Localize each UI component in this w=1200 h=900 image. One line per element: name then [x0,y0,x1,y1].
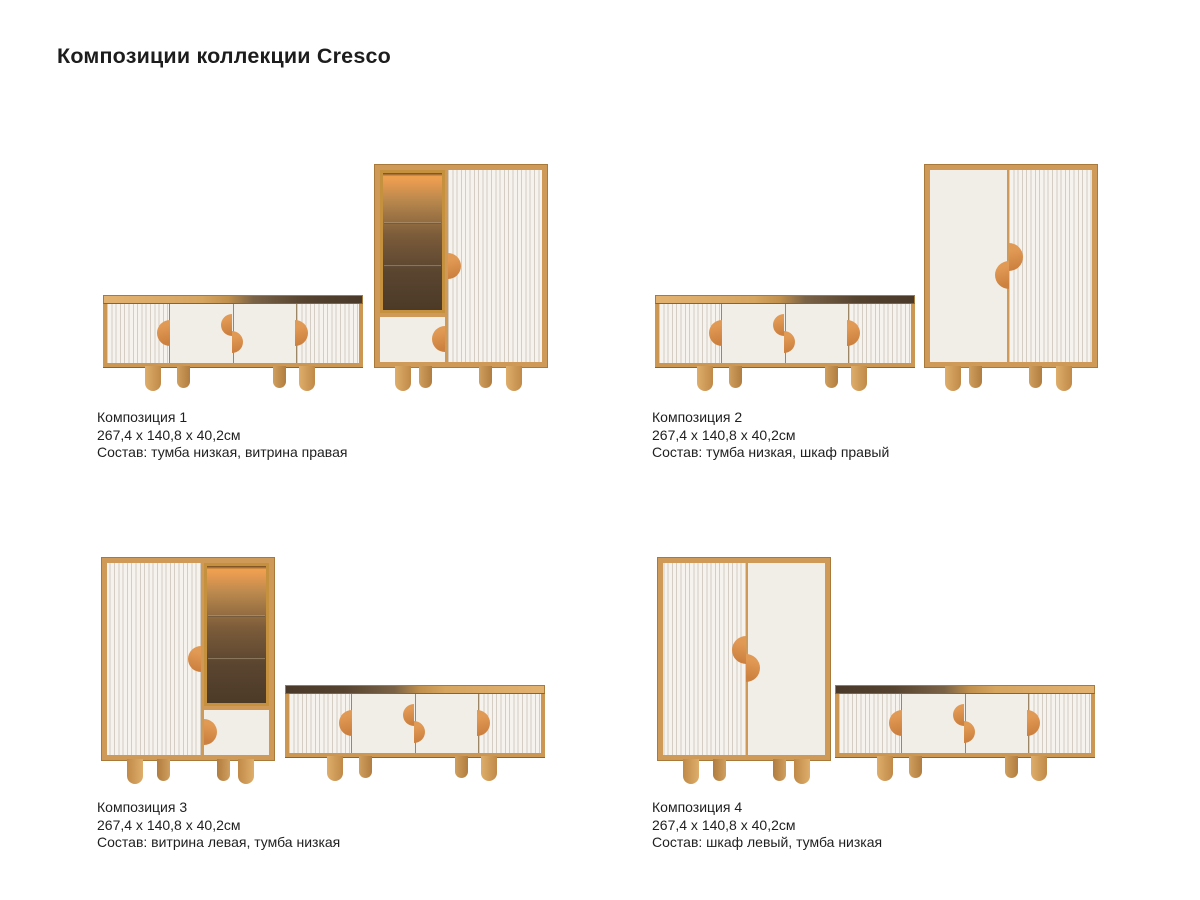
sideboard-front [285,694,545,757]
furniture-leg [877,756,893,781]
display-window [204,563,269,706]
furniture-leg [825,366,838,388]
composition-card-4: Композиция 4 267,4 x 140,8 x 40,2см Сост… [645,540,1115,890]
furniture-leg [1005,756,1018,778]
composition-dimensions: 267,4 x 140,8 x 40,2см [652,817,882,835]
furniture-leg [1029,366,1042,388]
composition-name: Композиция 2 [652,409,889,427]
composition-4-image [645,540,1115,790]
furniture-leg [455,756,468,778]
sideboard-wood-top [835,685,1095,694]
furniture-leg [713,759,726,781]
furniture-leg [1056,366,1072,391]
sideboard-door-right [966,694,1028,753]
composition-3-caption: Композиция 3 267,4 x 140,8 x 40,2см Сост… [97,799,340,852]
composition-dimensions: 267,4 x 140,8 x 40,2см [652,427,889,445]
furniture-leg [299,366,315,391]
furniture-leg [945,366,961,391]
furniture-leg [773,759,786,781]
wardrobe-right [925,165,1097,392]
composition-card-2: Композиция 2 267,4 x 140,8 x 40,2см Сост… [645,150,1115,500]
vitrine-right [375,165,547,392]
furniture-leg [395,366,411,391]
sideboard-door-left [902,694,964,753]
furniture-leg [909,756,922,778]
wardrobe-front [925,165,1097,367]
sideboard-wood-top [655,295,915,304]
sideboard-door-right [416,694,478,753]
furniture-leg [359,756,372,778]
vitrine-front [102,558,274,760]
sideboard-door-left [170,304,232,363]
sideboard-front [655,304,915,367]
wardrobe-door-fluted [1009,170,1092,362]
sideboard-door-left [352,694,414,753]
composition-dimensions: 267,4 x 140,8 x 40,2см [97,427,347,445]
sideboard-low [655,295,915,392]
composition-name: Композиция 4 [652,799,882,817]
composition-name: Композиция 1 [97,409,347,427]
vitrine-front [375,165,547,367]
composition-name: Композиция 3 [97,799,340,817]
furniture-leg [851,366,867,391]
furniture-leg [145,366,161,391]
wardrobe-left [658,558,830,785]
furniture-leg [327,756,343,781]
composition-2-caption: Композиция 2 267,4 x 140,8 x 40,2см Сост… [652,409,889,462]
furniture-leg [419,366,432,388]
furniture-leg [127,759,143,784]
display-window [380,170,445,313]
sideboard-door-right [234,304,296,363]
composition-1-image [90,150,560,400]
furniture-leg [217,759,230,781]
composition-contents: Состав: шкаф левый, тумба низкая [652,834,882,852]
sideboard-door-left [722,304,784,363]
sideboard-low [103,295,363,392]
composition-card-3: Композиция 3 267,4 x 140,8 x 40,2см Сост… [90,540,560,890]
sideboard-front [835,694,1095,757]
furniture-leg [177,366,190,388]
composition-3-image [90,540,560,790]
furniture-leg [273,366,286,388]
wardrobe-door-fluted [663,563,746,755]
vitrine-fluted-door [107,563,201,755]
composition-4-caption: Композиция 4 267,4 x 140,8 x 40,2см Сост… [652,799,882,852]
composition-dimensions: 267,4 x 140,8 x 40,2см [97,817,340,835]
wardrobe-door-smooth [930,170,1007,362]
sideboard-wood-top [285,685,545,694]
furniture-leg [1031,756,1047,781]
composition-contents: Состав: тумба низкая, витрина правая [97,444,347,462]
furniture-leg [794,759,810,784]
furniture-leg [238,759,254,784]
furniture-leg [157,759,170,781]
furniture-leg [479,366,492,388]
composition-contents: Состав: витрина левая, тумба низкая [97,834,340,852]
sideboard-front [103,304,363,367]
furniture-leg [683,759,699,784]
composition-1-caption: Композиция 1 267,4 x 140,8 x 40,2см Сост… [97,409,347,462]
page-title: Композиции коллекции Cresco [57,44,391,69]
furniture-leg [729,366,742,388]
composition-2-image [645,150,1115,400]
sideboard-low [835,685,1095,782]
catalog-page: Композиции коллекции Cresco [0,0,1200,900]
furniture-leg [481,756,497,781]
wardrobe-door-smooth [748,563,825,755]
vitrine-left [102,558,274,785]
wardrobe-front [658,558,830,760]
furniture-leg [697,366,713,391]
composition-contents: Состав: тумба низкая, шкаф правый [652,444,889,462]
composition-card-1: Композиция 1 267,4 x 140,8 x 40,2см Сост… [90,150,560,500]
sideboard-wood-top [103,295,363,304]
vitrine-fluted-door [448,170,542,362]
sideboard-door-right [786,304,848,363]
sideboard-low [285,685,545,782]
furniture-leg [969,366,982,388]
furniture-leg [506,366,522,391]
